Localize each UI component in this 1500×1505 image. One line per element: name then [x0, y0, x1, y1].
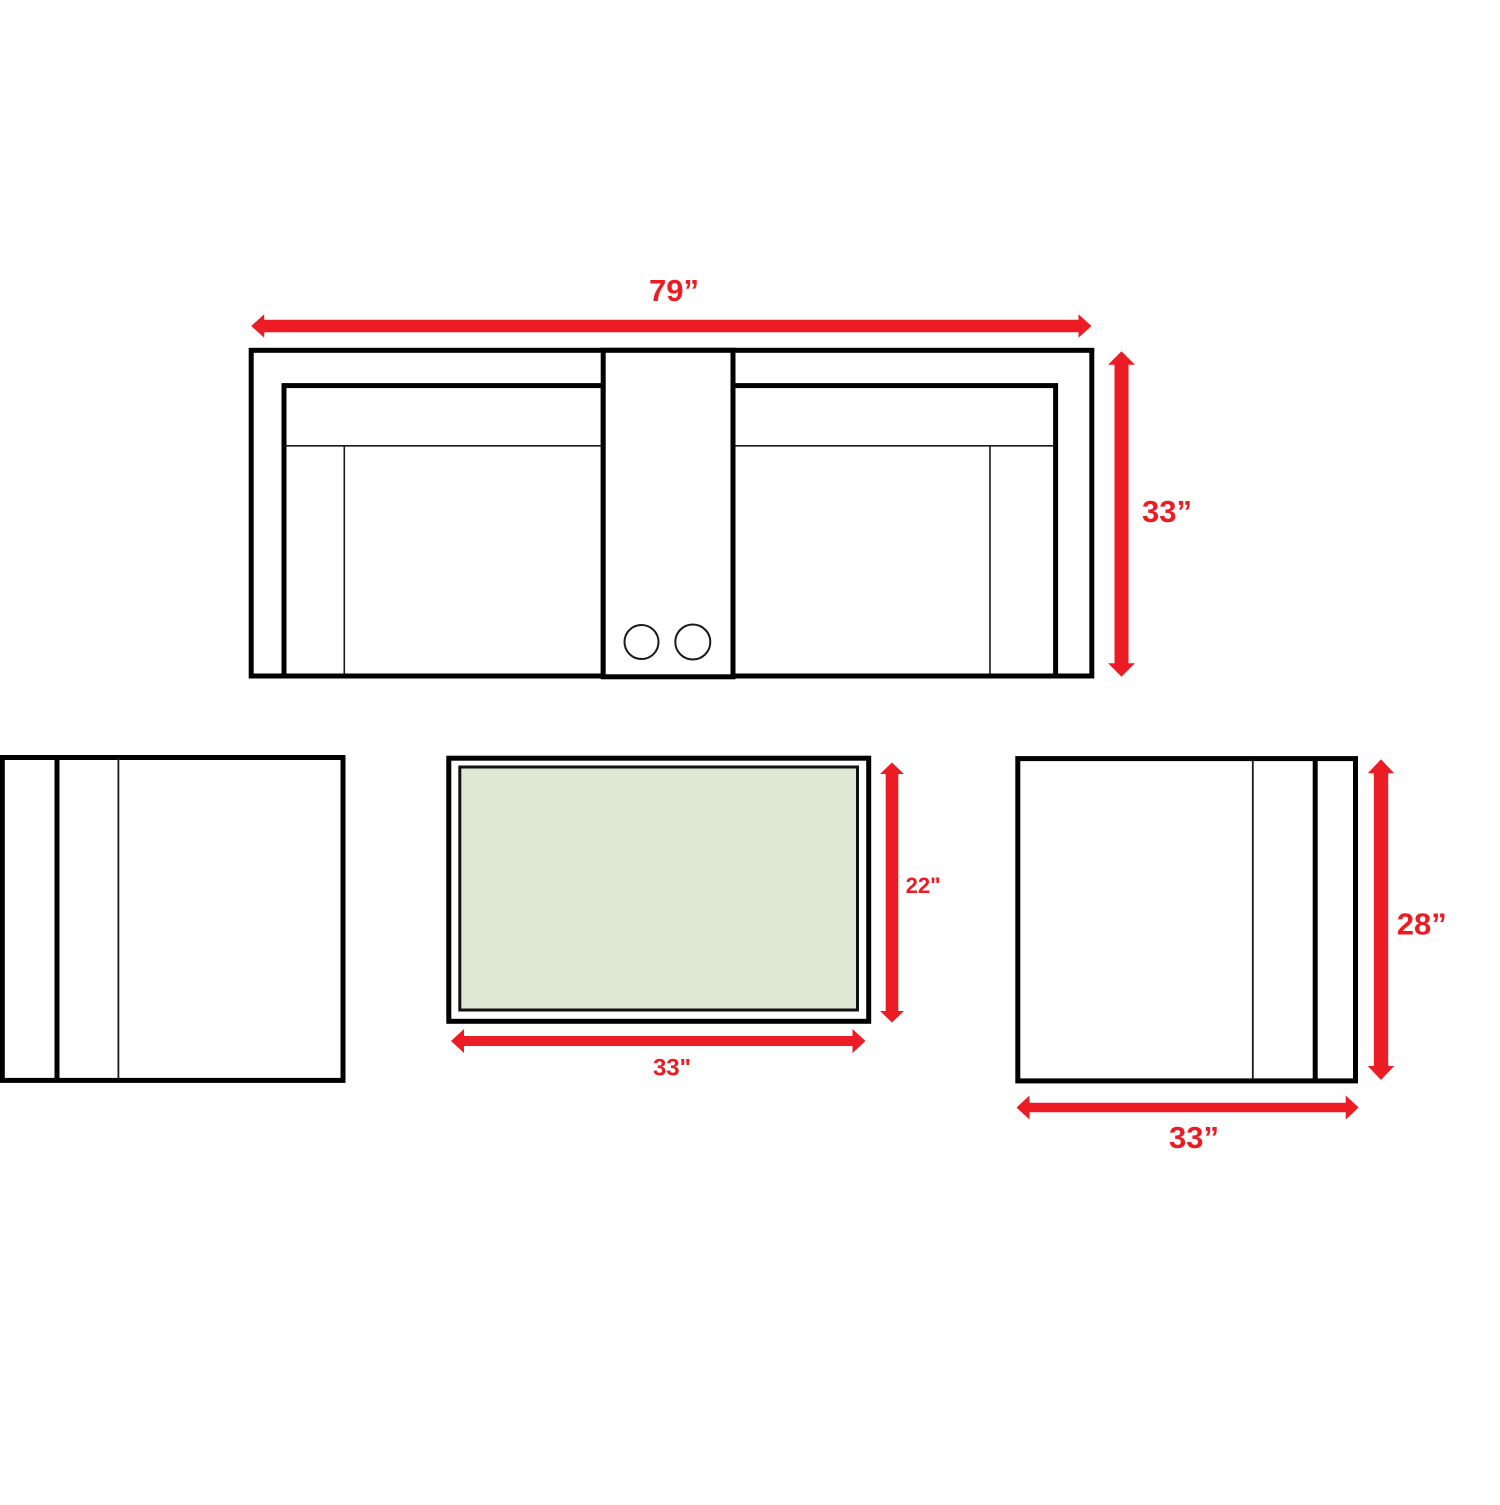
svg-text:33”: 33” [1169, 1120, 1219, 1155]
svg-text:33": 33" [653, 1055, 691, 1082]
svg-text:79”: 79” [649, 273, 699, 308]
svg-text:28”: 28” [1397, 906, 1447, 941]
svg-text:22": 22" [906, 873, 941, 898]
svg-text:33”: 33” [1142, 494, 1192, 529]
